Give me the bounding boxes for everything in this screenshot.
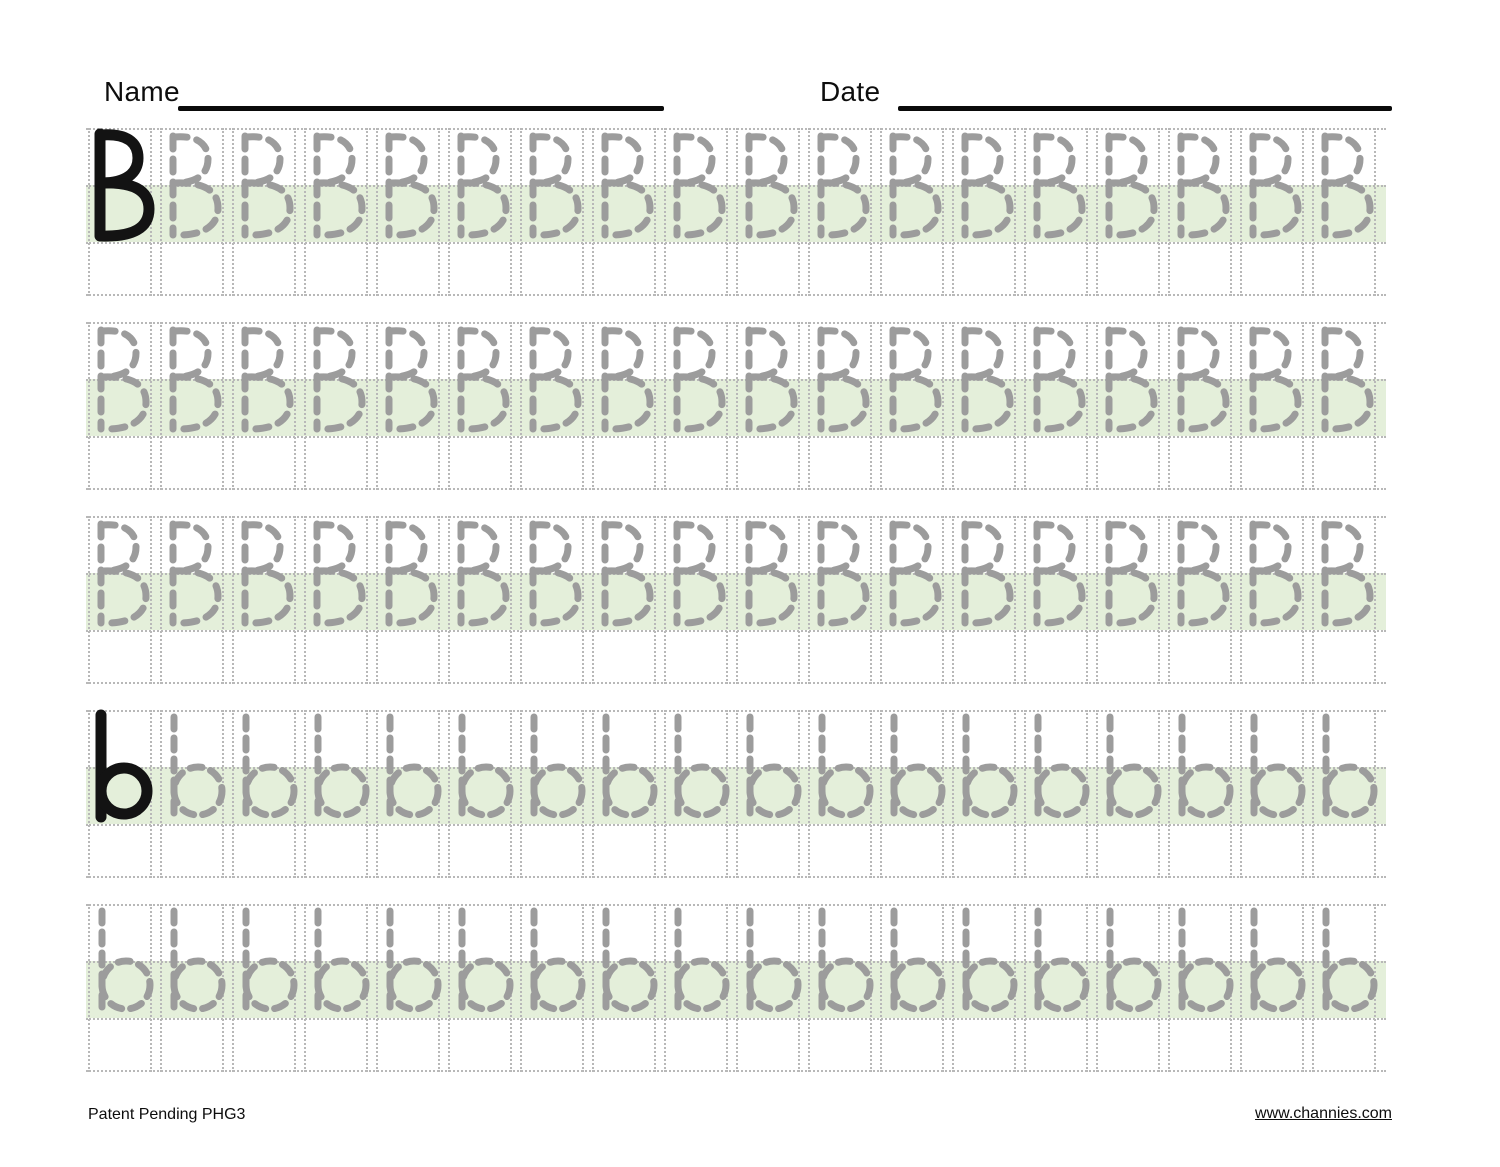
letter-B-trace xyxy=(1024,516,1088,630)
letter-B-trace xyxy=(1168,322,1232,436)
letter-B-trace xyxy=(808,128,872,242)
letter-B-trace xyxy=(664,322,728,436)
letter-b-trace xyxy=(1096,710,1160,824)
trace-cell xyxy=(592,516,656,684)
trace-cell xyxy=(520,516,584,684)
name-label: Name xyxy=(104,76,180,108)
trace-cell xyxy=(376,128,440,296)
letter-B-trace xyxy=(88,516,152,630)
trace-cell xyxy=(880,904,944,1072)
letter-B-trace xyxy=(520,128,584,242)
letter-B-trace xyxy=(448,516,512,630)
letter-b-trace xyxy=(952,904,1016,1018)
trace-cell xyxy=(952,904,1016,1072)
letter-b-trace xyxy=(880,710,944,824)
trace-cell xyxy=(808,516,872,684)
trace-cell xyxy=(448,322,512,490)
letter-b-trace xyxy=(664,710,728,824)
trace-cell xyxy=(1168,516,1232,684)
practice-row-5-b xyxy=(88,904,1376,1072)
trace-cell xyxy=(592,128,656,296)
trace-cell xyxy=(304,710,368,878)
name-write-line xyxy=(178,106,664,111)
letter-b-trace xyxy=(376,904,440,1018)
letter-b-trace xyxy=(1024,904,1088,1018)
letter-b-trace xyxy=(1168,710,1232,824)
date-label: Date xyxy=(820,76,880,108)
letter-b-trace xyxy=(1240,710,1304,824)
letter-B-trace xyxy=(952,516,1016,630)
trace-cell xyxy=(880,128,944,296)
letter-B-trace xyxy=(952,322,1016,436)
letter-B-trace xyxy=(232,128,296,242)
practice-row-3-B xyxy=(88,516,1376,684)
trace-cell xyxy=(952,322,1016,490)
trace-cell xyxy=(1240,322,1304,490)
trace-cell xyxy=(1168,904,1232,1072)
trace-cell xyxy=(1096,516,1160,684)
letter-B-trace xyxy=(448,322,512,436)
cell-strip xyxy=(88,322,1376,490)
trace-cell xyxy=(952,516,1016,684)
trace-cell xyxy=(1024,322,1088,490)
letter-b-trace xyxy=(1096,904,1160,1018)
letter-b-trace xyxy=(448,710,512,824)
letter-B-trace xyxy=(1024,128,1088,242)
patent-note: Patent Pending PHG3 xyxy=(88,1106,245,1124)
trace-cell xyxy=(880,322,944,490)
trace-cell xyxy=(448,516,512,684)
trace-cell xyxy=(1312,710,1376,878)
letter-b-trace xyxy=(232,904,296,1018)
trace-cell xyxy=(1024,710,1088,878)
letter-B-trace xyxy=(808,516,872,630)
letter-B-trace xyxy=(232,322,296,436)
trace-cell xyxy=(232,128,296,296)
letter-B-trace xyxy=(520,322,584,436)
trace-cell xyxy=(1168,128,1232,296)
trace-cell xyxy=(592,904,656,1072)
letter-B-trace xyxy=(880,128,944,242)
letter-b-trace xyxy=(304,904,368,1018)
letter-b-trace xyxy=(736,710,800,824)
trace-cell xyxy=(1024,128,1088,296)
letter-B-trace xyxy=(160,128,224,242)
letter-b-trace xyxy=(1024,710,1088,824)
trace-cell xyxy=(160,516,224,684)
letter-B-trace xyxy=(1168,128,1232,242)
trace-cell xyxy=(160,710,224,878)
letter-b-trace xyxy=(808,710,872,824)
letter-B-trace xyxy=(376,322,440,436)
cell-strip xyxy=(88,904,1376,1072)
trace-cell xyxy=(232,710,296,878)
trace-cell xyxy=(520,322,584,490)
letter-b-trace xyxy=(232,710,296,824)
letter-B-trace xyxy=(304,322,368,436)
cell-strip xyxy=(88,128,1376,296)
trace-cell xyxy=(376,710,440,878)
website-link[interactable]: www.channies.com xyxy=(1255,1105,1392,1123)
letter-b-trace xyxy=(1168,904,1232,1018)
letter-B-trace xyxy=(1312,516,1376,630)
trace-cell xyxy=(1096,128,1160,296)
trace-cell xyxy=(88,516,152,684)
practice-row-2-B xyxy=(88,322,1376,490)
trace-cell xyxy=(1312,904,1376,1072)
letter-B-trace xyxy=(952,128,1016,242)
letter-b-trace xyxy=(448,904,512,1018)
letter-b-trace xyxy=(160,904,224,1018)
trace-cell xyxy=(232,904,296,1072)
trace-cell xyxy=(376,904,440,1072)
trace-cell xyxy=(1024,904,1088,1072)
trace-cell xyxy=(1312,516,1376,684)
trace-cell xyxy=(952,710,1016,878)
trace-cell xyxy=(1240,516,1304,684)
letter-b-trace xyxy=(1312,904,1376,1018)
trace-cell xyxy=(304,128,368,296)
trace-cell xyxy=(88,710,152,878)
trace-cell xyxy=(736,710,800,878)
letter-B-trace xyxy=(880,322,944,436)
trace-cell xyxy=(520,904,584,1072)
letter-B-trace xyxy=(736,322,800,436)
letter-B-trace xyxy=(736,128,800,242)
trace-cell xyxy=(304,322,368,490)
date-write-line xyxy=(898,106,1392,111)
letter-b-trace xyxy=(376,710,440,824)
trace-cell xyxy=(1168,710,1232,878)
trace-cell xyxy=(1312,128,1376,296)
letter-b-trace xyxy=(1240,904,1304,1018)
trace-cell xyxy=(592,322,656,490)
practice-rows xyxy=(88,128,1376,1072)
letter-B-trace xyxy=(664,128,728,242)
trace-cell xyxy=(736,128,800,296)
letter-B-trace xyxy=(304,516,368,630)
trace-cell xyxy=(376,322,440,490)
trace-cell xyxy=(1024,516,1088,684)
letter-B-trace xyxy=(232,516,296,630)
cell-strip xyxy=(88,516,1376,684)
trace-cell xyxy=(592,710,656,878)
trace-cell xyxy=(808,904,872,1072)
trace-cell xyxy=(1240,128,1304,296)
trace-cell xyxy=(880,516,944,684)
trace-cell xyxy=(664,710,728,878)
trace-cell xyxy=(1240,904,1304,1072)
trace-cell xyxy=(232,322,296,490)
trace-cell xyxy=(520,128,584,296)
trace-cell xyxy=(304,516,368,684)
letter-B-trace xyxy=(736,516,800,630)
trace-cell xyxy=(664,128,728,296)
trace-cell xyxy=(448,128,512,296)
letter-B-trace xyxy=(1312,128,1376,242)
worksheet-page: Name Date Patent Pending PHG3 www.channi… xyxy=(0,0,1500,1167)
letter-B-trace xyxy=(1168,516,1232,630)
letter-B-trace xyxy=(880,516,944,630)
letter-b-trace xyxy=(880,904,944,1018)
trace-cell xyxy=(1312,322,1376,490)
letter-B-trace xyxy=(160,322,224,436)
trace-cell xyxy=(736,904,800,1072)
trace-cell xyxy=(88,904,152,1072)
letter-b-trace xyxy=(592,710,656,824)
trace-cell xyxy=(1096,322,1160,490)
trace-cell xyxy=(160,322,224,490)
letter-B-trace xyxy=(1096,516,1160,630)
trace-cell xyxy=(448,710,512,878)
letter-b-solid xyxy=(88,710,152,824)
letter-B-trace xyxy=(592,128,656,242)
letter-B-trace xyxy=(1240,128,1304,242)
trace-cell xyxy=(88,128,152,296)
letter-B-trace xyxy=(376,128,440,242)
letter-B-trace xyxy=(520,516,584,630)
trace-cell xyxy=(736,322,800,490)
letter-b-trace xyxy=(304,710,368,824)
trace-cell xyxy=(448,904,512,1072)
letter-B-trace xyxy=(592,322,656,436)
cell-strip xyxy=(88,710,1376,878)
trace-cell xyxy=(1240,710,1304,878)
trace-cell xyxy=(1096,904,1160,1072)
letter-B-trace xyxy=(1240,516,1304,630)
letter-b-trace xyxy=(1312,710,1376,824)
trace-cell xyxy=(808,128,872,296)
trace-cell xyxy=(664,904,728,1072)
letter-b-trace xyxy=(952,710,1016,824)
trace-cell xyxy=(1168,322,1232,490)
letter-b-trace xyxy=(160,710,224,824)
letter-B-trace xyxy=(1096,322,1160,436)
trace-cell xyxy=(376,516,440,684)
trace-cell xyxy=(232,516,296,684)
letter-b-trace xyxy=(88,904,152,1018)
trace-cell xyxy=(808,710,872,878)
trace-cell xyxy=(520,710,584,878)
letter-b-trace xyxy=(592,904,656,1018)
trace-cell xyxy=(1096,710,1160,878)
letter-b-trace xyxy=(520,904,584,1018)
letter-B-trace xyxy=(160,516,224,630)
letter-B-trace xyxy=(1096,128,1160,242)
trace-cell xyxy=(304,904,368,1072)
practice-row-4-b xyxy=(88,710,1376,878)
letter-b-trace xyxy=(520,710,584,824)
letter-b-trace xyxy=(808,904,872,1018)
letter-B-trace xyxy=(304,128,368,242)
letter-B-trace xyxy=(1240,322,1304,436)
trace-cell xyxy=(952,128,1016,296)
letter-B-trace xyxy=(592,516,656,630)
trace-cell xyxy=(160,904,224,1072)
letter-B-trace xyxy=(808,322,872,436)
letter-B-trace xyxy=(376,516,440,630)
letter-B-solid xyxy=(88,128,152,242)
letter-B-trace xyxy=(664,516,728,630)
letter-B-trace xyxy=(1312,322,1376,436)
trace-cell xyxy=(664,322,728,490)
trace-cell xyxy=(736,516,800,684)
letter-b-trace xyxy=(736,904,800,1018)
letter-B-trace xyxy=(88,322,152,436)
trace-cell xyxy=(88,322,152,490)
practice-row-1-B xyxy=(88,128,1376,296)
trace-cell xyxy=(664,516,728,684)
trace-cell xyxy=(160,128,224,296)
trace-cell xyxy=(808,322,872,490)
trace-cell xyxy=(880,710,944,878)
letter-B-trace xyxy=(448,128,512,242)
letter-B-trace xyxy=(1024,322,1088,436)
letter-b-trace xyxy=(664,904,728,1018)
